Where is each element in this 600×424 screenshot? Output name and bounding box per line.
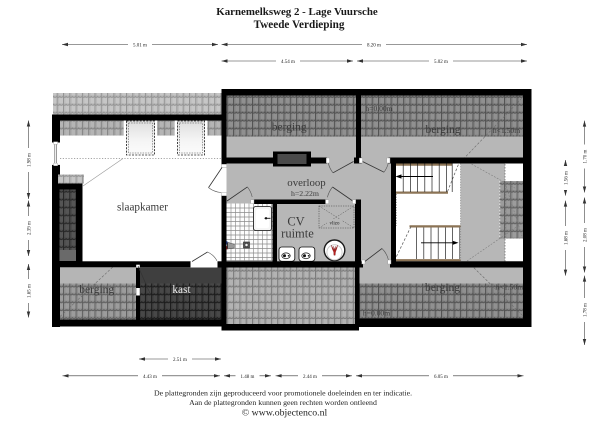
svg-text:1.78 m: 1.78 m: [583, 303, 588, 317]
svg-text:4.43 m: 4.43 m: [143, 375, 157, 380]
svg-text:h=2.22m: h=2.22m: [291, 189, 319, 198]
svg-text:1.98 m: 1.98 m: [27, 153, 32, 167]
svg-text:Tweede Verdieping: Tweede Verdieping: [254, 19, 345, 31]
svg-text:ruimte: ruimte: [281, 227, 314, 241]
svg-text:De plattegronden zijn geproduc: De plattegronden zijn geproduceerd voor …: [154, 389, 412, 398]
svg-text:Karnemelksweg 2 - Lage Vuursch: Karnemelksweg 2 - Lage Vuursche: [216, 6, 378, 18]
svg-text:4.54 m: 4.54 m: [281, 60, 295, 65]
svg-text:2.51 m: 2.51 m: [173, 358, 187, 363]
svg-text:slaapkamer: slaapkamer: [117, 202, 168, 214]
svg-text:5.02 m: 5.02 m: [434, 60, 448, 65]
svg-text:8.20 m: 8.20 m: [367, 44, 381, 49]
svg-text:vlizo: vlizo: [330, 221, 340, 226]
svg-text:1.48 m: 1.48 m: [241, 375, 255, 380]
svg-text:overloop: overloop: [287, 177, 325, 189]
svg-text:h<1.50m: h<1.50m: [496, 283, 523, 292]
svg-text:2.39 m: 2.39 m: [27, 221, 32, 235]
svg-text:5.01 m: 5.01 m: [133, 44, 147, 49]
svg-text:h=0.00m: h=0.00m: [363, 309, 390, 318]
svg-text:h=0.00m: h=0.00m: [365, 104, 392, 113]
svg-text:berging: berging: [425, 282, 460, 294]
svg-text:Aan de plattegronden kunnen ge: Aan de plattegronden kunnen geen rechten…: [189, 398, 377, 407]
svg-text:berging: berging: [426, 124, 461, 136]
svg-text:h<1.50m: h<1.50m: [493, 126, 520, 135]
svg-text:1.70 m: 1.70 m: [583, 149, 588, 163]
svg-text:1.56 m: 1.56 m: [564, 171, 569, 185]
svg-text:2.44 m: 2.44 m: [303, 375, 317, 380]
svg-text:2.08 m: 2.08 m: [583, 228, 588, 242]
svg-text:1.68 m: 1.68 m: [564, 231, 569, 245]
svg-text:berging: berging: [272, 122, 307, 134]
svg-text:1.65 m: 1.65 m: [27, 284, 32, 298]
svg-text:kast: kast: [172, 284, 191, 296]
svg-text:berging: berging: [79, 284, 114, 296]
svg-text:6.05 m: 6.05 m: [434, 375, 448, 380]
svg-text:© www.objectenco.nl: © www.objectenco.nl: [242, 407, 328, 418]
